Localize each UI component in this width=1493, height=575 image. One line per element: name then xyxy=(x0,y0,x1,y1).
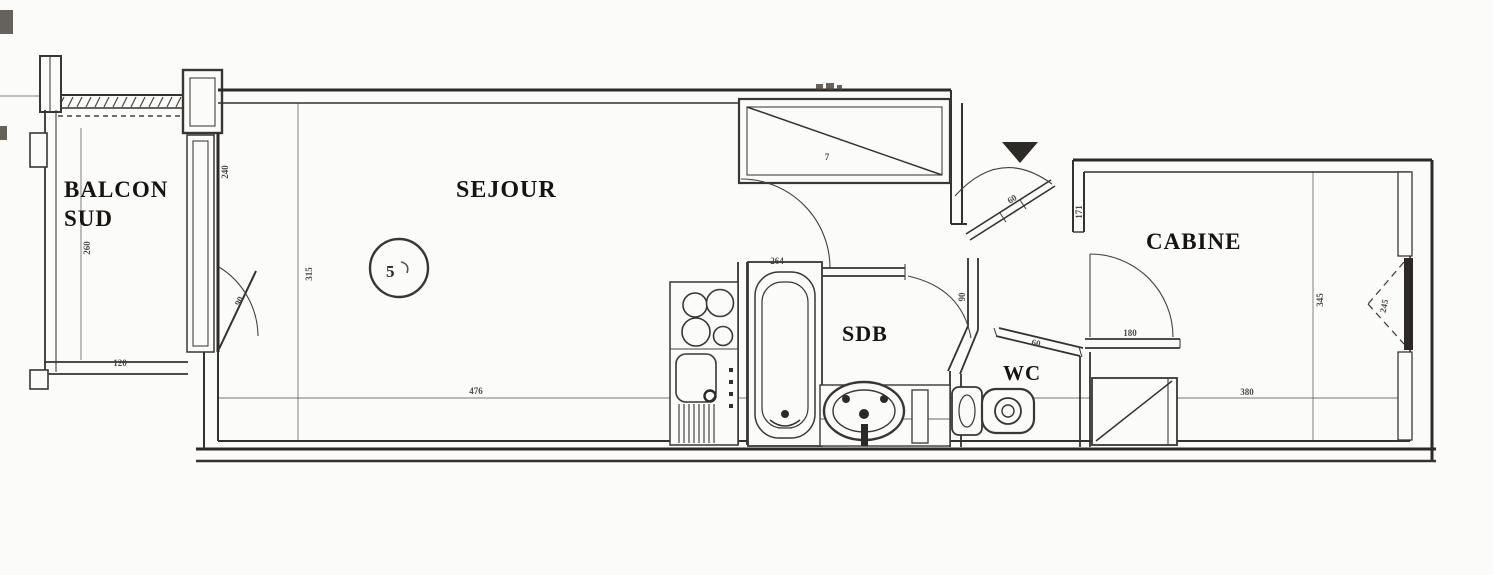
dim-cabine-width: 380 xyxy=(1240,387,1254,397)
cabine-door xyxy=(1090,254,1173,337)
dim-window-width: 240 xyxy=(220,165,230,179)
entrance-door xyxy=(955,168,1055,240)
window-balcony xyxy=(187,135,214,352)
table-mark: 5 xyxy=(386,262,395,281)
room-label-wc: WC xyxy=(1003,361,1041,385)
room-label-balcon-line2: SUD xyxy=(64,206,113,231)
dim-balcony-width: 120 xyxy=(113,358,127,368)
table-symbol: 5 xyxy=(370,239,428,297)
entrance-arrow-icon xyxy=(1002,142,1038,163)
dim-sdb-door: 90 xyxy=(957,292,967,302)
dim-sdb-wall: 264 xyxy=(770,256,784,266)
kitchenette xyxy=(670,282,738,445)
closet-mark: 7 xyxy=(825,152,830,162)
dim-entry-door: 60 xyxy=(1006,192,1019,206)
dim-cabine-jamb: 171 xyxy=(1074,205,1084,219)
dim-cabine-depth: 345 xyxy=(1315,293,1325,307)
cabine-window xyxy=(1368,172,1413,440)
balcony-door-arc xyxy=(219,267,258,349)
bathtub-icon xyxy=(748,262,822,446)
floor-plan-page: 5 BALCON SUD SEJOUR SDB WC CABINE 260 12… xyxy=(0,0,1493,575)
window-glazing-bar xyxy=(1404,258,1413,350)
sejour-door-arc xyxy=(741,179,830,268)
toilet-icon xyxy=(952,387,1034,435)
room-label-cabine: CABINE xyxy=(1146,229,1241,254)
pillar xyxy=(183,70,222,133)
sdb-door-arc xyxy=(908,276,971,338)
room-label-balcon-line1: BALCON xyxy=(64,177,168,202)
scan-artifacts xyxy=(0,10,40,140)
wardrobe-closet-top xyxy=(739,83,950,183)
cabine-interior xyxy=(1092,378,1177,445)
dim-cabine-window: 245 xyxy=(1378,298,1391,314)
dim-balcony-height: 260 xyxy=(82,241,92,255)
dim-sejour-width: 476 xyxy=(469,386,483,396)
balcony-window-wall xyxy=(183,70,258,352)
room-label-sdb: SDB xyxy=(842,321,888,346)
smudge-dimension xyxy=(816,83,842,90)
dim-sejour-depth: 315 xyxy=(304,267,314,281)
room-label-sejour: SEJOUR xyxy=(456,177,557,203)
railing-hatch xyxy=(50,97,181,107)
dim-cabine-door: 180 xyxy=(1123,328,1137,338)
floor-plan: 5 BALCON SUD SEJOUR SDB WC CABINE 260 12… xyxy=(0,0,1493,575)
